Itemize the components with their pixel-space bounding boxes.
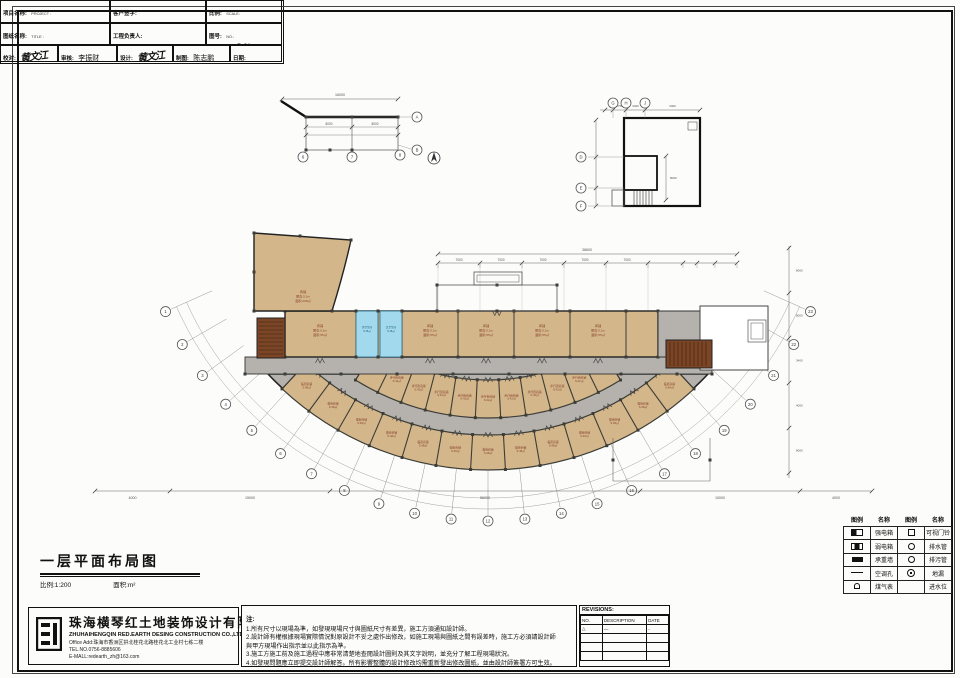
svg-text:23: 23 bbox=[808, 309, 813, 314]
detail-plan-canopy: 1600080008000678AB bbox=[280, 93, 422, 162]
svg-text:面积:55㎡: 面积:55㎡ bbox=[591, 332, 605, 337]
svg-text:S:48㎡: S:48㎡ bbox=[419, 443, 428, 447]
legend-row: 强电箱可视门铃 bbox=[844, 526, 952, 540]
revisions-title: REVISIONS: bbox=[580, 606, 669, 615]
svg-text:层高:5.1m: 层高:5.1m bbox=[423, 328, 437, 333]
legend-name: 承重墙 bbox=[871, 553, 898, 567]
date-cell: 日期: 2018.08.24 DATE: bbox=[230, 45, 282, 62]
company-name-cn: 珠海横琴红土地装饰设计有限公司 bbox=[69, 612, 234, 631]
svg-text:层高:5.1m: 层高:5.1m bbox=[591, 328, 605, 333]
svg-text:S:42㎡: S:42㎡ bbox=[460, 397, 469, 401]
svg-text:8000: 8000 bbox=[796, 449, 803, 453]
legend-name: 地漏 bbox=[925, 567, 952, 581]
svg-text:J: J bbox=[644, 101, 646, 106]
legend-row: 空调孔地漏 bbox=[844, 567, 952, 581]
revisions-cell: △ bbox=[581, 625, 603, 634]
svg-text:商铺: 商铺 bbox=[427, 323, 433, 328]
revisions-col: DESCRIPTION bbox=[602, 616, 646, 625]
svg-text:8000: 8000 bbox=[796, 269, 803, 273]
legend-name: 排污管 bbox=[925, 553, 952, 567]
drawing-no-cell: 图号: NO.: P-01 bbox=[206, 23, 282, 45]
svg-text:商铺: 商铺 bbox=[539, 323, 545, 328]
svg-text:12: 12 bbox=[486, 519, 491, 524]
svg-text:商铺: 商铺 bbox=[300, 289, 306, 294]
project-label: 项目名称: bbox=[3, 11, 27, 17]
company-address: Office Add:珠海市香洲区拱北桂花北路桂花北工业村七栋二楼 bbox=[69, 639, 234, 646]
svg-text:S:42㎡: S:42㎡ bbox=[575, 379, 584, 383]
revisions-cell: - bbox=[647, 625, 669, 634]
svg-text:S:48㎡: S:48㎡ bbox=[610, 421, 619, 425]
drawn-label: 制图: bbox=[176, 56, 189, 62]
legend-symbol-meter bbox=[854, 583, 860, 589]
svg-text:15000: 15000 bbox=[715, 496, 725, 500]
pm-label: 工程负责人: bbox=[113, 34, 142, 40]
legend-name: 强电箱 bbox=[871, 526, 898, 540]
svg-text:D: D bbox=[579, 155, 582, 160]
legend-name: 排水管 bbox=[925, 540, 952, 554]
legend-symbol-box1 bbox=[851, 529, 863, 536]
legend-name: 空调孔 bbox=[871, 567, 898, 581]
scale-cell: 比例: SCALE: 见图 bbox=[206, 0, 282, 23]
svg-text:B: B bbox=[416, 148, 419, 153]
construction-lines bbox=[438, 263, 648, 311]
svg-text:S:18㎡: S:18㎡ bbox=[363, 329, 371, 333]
client-sign-cell: 客户签字: bbox=[110, 0, 206, 23]
drawing-label: 图纸名称: bbox=[3, 34, 27, 40]
no-label-en: NO.: bbox=[226, 35, 234, 39]
legend-name: 进水位 bbox=[925, 580, 952, 594]
company-tel: TEL.NO.0756-8885606 bbox=[69, 647, 234, 653]
design-signature: 黄文江 bbox=[136, 46, 165, 62]
revisions-cell bbox=[581, 643, 603, 652]
svg-text:4000: 4000 bbox=[832, 496, 840, 500]
svg-text:15: 15 bbox=[595, 501, 600, 506]
plan-title-block: 一层平面布局图 比例:1:200 面积:m² bbox=[40, 551, 240, 589]
legend-symbol-hline bbox=[851, 572, 863, 574]
title-underline bbox=[40, 573, 200, 575]
svg-text:7000: 7000 bbox=[455, 258, 462, 262]
svg-text:S:48㎡: S:48㎡ bbox=[516, 449, 525, 453]
pm-cell: 工程负责人: bbox=[110, 23, 206, 45]
svg-text:7000: 7000 bbox=[497, 258, 504, 262]
design-label: 设计: bbox=[120, 56, 133, 62]
svg-text:男卫生间: 男卫生间 bbox=[362, 325, 373, 329]
svg-text:8000: 8000 bbox=[796, 314, 803, 318]
svg-text:16: 16 bbox=[629, 488, 634, 493]
svg-text:22: 22 bbox=[791, 342, 796, 347]
svg-text:20: 20 bbox=[748, 402, 753, 407]
drawing-name-cell: 图纸名称: TITLE : 一层平面布局图 bbox=[0, 23, 110, 45]
notes-block: 注: 1.所有尺寸以現場為準，如發現現場尺寸與圖紙尺寸有差異，施工方須通知設計師… bbox=[241, 605, 577, 667]
svg-text:S:42㎡: S:42㎡ bbox=[484, 398, 493, 402]
svg-text:S:48㎡: S:48㎡ bbox=[451, 449, 460, 453]
revisions-block: REVISIONS: NO.DESCRIPTIONDATE△—- bbox=[579, 605, 670, 667]
scale-label-en: SCALE: bbox=[226, 12, 240, 16]
revisions-cell bbox=[602, 643, 646, 652]
svg-text:18: 18 bbox=[693, 451, 698, 456]
svg-text:商铺: 商铺 bbox=[483, 323, 489, 328]
svg-text:11: 11 bbox=[449, 517, 454, 522]
svg-text:7000: 7000 bbox=[539, 258, 546, 262]
svg-text:面积:55㎡: 面积:55㎡ bbox=[313, 332, 327, 337]
note-line: 4.如發現問題應立即提交設計師解答。所有影響整體的設計修改均需重新發出修改圖紙，… bbox=[246, 660, 572, 668]
design-cell: 设计: 黄文江 DESIGNER: bbox=[117, 45, 173, 62]
detail-plan-core: 175034003400GHJDEF8000 bbox=[576, 98, 702, 211]
svg-text:S:42㎡: S:42㎡ bbox=[553, 387, 562, 391]
revisions-cell bbox=[647, 643, 669, 652]
svg-text:F: F bbox=[580, 204, 583, 209]
title-block: 项目名称: PROJECT : 恒健智能制造产业基地-3号楼 客户签字: 比例:… bbox=[0, 0, 284, 64]
svg-text:4000: 4000 bbox=[796, 404, 803, 408]
company-email: E-MALL:redearth_zh@163.com bbox=[69, 654, 234, 660]
revisions-cell bbox=[581, 634, 603, 643]
svg-text:商铺: 商铺 bbox=[317, 323, 323, 328]
svg-text:层高:5.1m: 层高:5.1m bbox=[313, 328, 327, 333]
svg-text:14: 14 bbox=[559, 511, 564, 516]
svg-text:S:18㎡: S:18㎡ bbox=[387, 329, 395, 333]
svg-text:8000: 8000 bbox=[371, 122, 378, 126]
revisions-col: DATE bbox=[647, 616, 669, 625]
svg-text:面积:55㎡: 面积:55㎡ bbox=[423, 332, 437, 337]
svg-text:S:48㎡: S:48㎡ bbox=[580, 434, 589, 438]
check-cell: 校对: 黄文江 CHECKED: bbox=[0, 45, 58, 62]
svg-text:S:42㎡: S:42㎡ bbox=[507, 397, 516, 401]
drawn-value: 陈志鹏 bbox=[193, 55, 214, 62]
svg-text:8000: 8000 bbox=[670, 176, 677, 180]
legend-name: 弱电箱 bbox=[871, 540, 898, 554]
courtyard bbox=[436, 272, 559, 316]
svg-text:S:42㎡: S:42㎡ bbox=[530, 393, 539, 397]
legend-symbol-box2 bbox=[851, 543, 863, 550]
svg-text:S:42㎡: S:42㎡ bbox=[414, 387, 423, 391]
svg-text:7000: 7000 bbox=[623, 258, 630, 262]
revisions-cell: — bbox=[602, 625, 646, 634]
svg-text:38600: 38600 bbox=[582, 248, 592, 252]
svg-text:17: 17 bbox=[662, 471, 667, 476]
north-arrow-icon bbox=[428, 152, 440, 164]
revisions-cell bbox=[602, 652, 646, 661]
legend-symbol-blank bbox=[908, 584, 914, 588]
approve-cell: 审核: 李振财 APPROVED BY: bbox=[58, 45, 117, 62]
svg-text:S:42㎡: S:42㎡ bbox=[437, 393, 446, 397]
approve-value: 李振财 bbox=[78, 55, 99, 62]
date-label: 日期: bbox=[233, 56, 246, 62]
legend-header: 图例 bbox=[898, 513, 925, 526]
legend-header: 名称 bbox=[871, 513, 898, 526]
svg-text:S:48㎡: S:48㎡ bbox=[549, 443, 558, 447]
dim-chain-top: 3860070007000700070007000 bbox=[436, 248, 739, 268]
svg-text:15000: 15000 bbox=[245, 496, 255, 500]
svg-text:3400: 3400 bbox=[632, 104, 639, 108]
drawn-cell: 制图: 陈志鹏 DRAWN: bbox=[173, 45, 230, 62]
legend-name: 可视门铃 bbox=[925, 526, 952, 540]
svg-text:S:48㎡: S:48㎡ bbox=[357, 421, 366, 425]
svg-text:S:48㎡: S:48㎡ bbox=[387, 434, 396, 438]
svg-text:21: 21 bbox=[771, 373, 776, 378]
drawing-label-en: TITLE : bbox=[31, 35, 43, 39]
dim-chain-right: 80008000340040008000 bbox=[787, 246, 803, 478]
svg-text:层高:5.1m: 层高:5.1m bbox=[296, 294, 310, 299]
svg-text:56000: 56000 bbox=[480, 496, 490, 500]
revisions-cell bbox=[647, 634, 669, 643]
svg-text:7000: 7000 bbox=[581, 258, 588, 262]
svg-text:16000: 16000 bbox=[335, 93, 345, 97]
svg-text:商铺: 商铺 bbox=[595, 323, 601, 328]
svg-text:4000: 4000 bbox=[129, 496, 137, 500]
client-sign-label: 客户签字: bbox=[113, 11, 137, 17]
company-block: 珠海横琴红土地装饰设计有限公司 ZHUHAIHENGQIN RED.EARTH … bbox=[28, 607, 239, 665]
svg-text:G: G bbox=[611, 101, 614, 106]
legend-header: 图例 bbox=[844, 513, 871, 526]
svg-text:层高:5.1m: 层高:5.1m bbox=[479, 328, 493, 333]
dim-chain-bottom: 40001500056000150004000 bbox=[93, 489, 874, 500]
plan-scale: 比例:1:200 bbox=[40, 579, 71, 589]
svg-text:女卫生间: 女卫生间 bbox=[386, 325, 397, 329]
legend-symbol-circ bbox=[908, 556, 915, 563]
legend: 图例名称图例名称强电箱可视门铃弱电箱排水管承重墙排污管空调孔地漏煤气表进水位 bbox=[843, 513, 952, 601]
legend-symbol-wall bbox=[852, 557, 863, 562]
svg-text:S:48㎡: S:48㎡ bbox=[639, 405, 648, 409]
legend-row: 弱电箱排水管 bbox=[844, 540, 952, 554]
svg-text:S:48㎡: S:48㎡ bbox=[329, 405, 338, 409]
check-label: 校对: bbox=[3, 56, 16, 62]
svg-text:面积:55㎡: 面积:55㎡ bbox=[535, 332, 549, 337]
legend-name: 煤气表 bbox=[871, 580, 898, 594]
plan-title: 一层平面布局图 bbox=[40, 551, 240, 571]
svg-text:13: 13 bbox=[523, 517, 528, 522]
notes-heading: 注: bbox=[246, 616, 255, 623]
svg-text:8000: 8000 bbox=[325, 122, 332, 126]
company-logo-icon bbox=[36, 617, 62, 651]
revisions-col: NO. bbox=[581, 616, 603, 625]
company-name-en: ZHUHAIHENGQIN RED.EARTH DESING CONSTRUCT… bbox=[69, 632, 234, 638]
check-signature: 黄文江 bbox=[19, 46, 48, 62]
svg-text:E: E bbox=[580, 186, 583, 191]
svg-text:S:48㎡: S:48㎡ bbox=[665, 385, 674, 389]
legend-row: 煤气表进水位 bbox=[844, 580, 952, 594]
no-label: 图号: bbox=[209, 34, 222, 40]
svg-text:H: H bbox=[624, 101, 627, 106]
title-underline-thin bbox=[40, 576, 200, 577]
svg-text:3400: 3400 bbox=[669, 104, 676, 108]
legend-row: 承重墙排污管 bbox=[844, 553, 952, 567]
legend-symbol-dotc bbox=[907, 569, 915, 577]
legend-symbol-sq bbox=[908, 529, 915, 536]
revisions-cell bbox=[581, 652, 603, 661]
svg-text:层高:5.1m: 层高:5.1m bbox=[535, 328, 549, 333]
project-cell: 项目名称: PROJECT : 恒健智能制造产业基地-3号楼 bbox=[0, 0, 110, 23]
svg-text:10: 10 bbox=[412, 511, 417, 516]
project-label-en: PROJECT : bbox=[31, 12, 51, 16]
drawing-sheet: 临街商铺S:48㎡临街商铺S:48㎡临街商铺S:48㎡临街商铺S:48㎡临街商铺… bbox=[0, 0, 960, 678]
revisions-cell bbox=[602, 634, 646, 643]
revisions-cell bbox=[647, 652, 669, 661]
approve-label: 审核: bbox=[61, 56, 74, 62]
svg-text:S:42㎡: S:42㎡ bbox=[392, 379, 401, 383]
svg-text:3400: 3400 bbox=[796, 359, 803, 363]
svg-text:A: A bbox=[416, 115, 419, 120]
svg-text:面积:268㎡: 面积:268㎡ bbox=[295, 298, 311, 303]
svg-text:19: 19 bbox=[722, 428, 727, 433]
legend-symbol-circ bbox=[908, 543, 915, 550]
note-line: 2.設計師有權根據現場實際情況對原設計不妥之處作出修改，如施工現場與圖紙之間有誤… bbox=[246, 634, 572, 642]
svg-text:S:48㎡: S:48㎡ bbox=[302, 385, 311, 389]
scale-label: 比例: bbox=[209, 11, 222, 17]
legend-header: 名称 bbox=[925, 513, 952, 526]
svg-text:S:48㎡: S:48㎡ bbox=[484, 451, 493, 455]
plan-area: 面积:m² bbox=[113, 579, 135, 589]
note-line: 3.施工方施工前及施工過程中應非常清楚地查閱設計圖則及其文字說明，並充分了解工程… bbox=[246, 651, 572, 659]
note-line: 與甲方現場作出指示並以此指示為準。 bbox=[246, 643, 572, 651]
svg-text:面积:55㎡: 面积:55㎡ bbox=[479, 332, 493, 337]
